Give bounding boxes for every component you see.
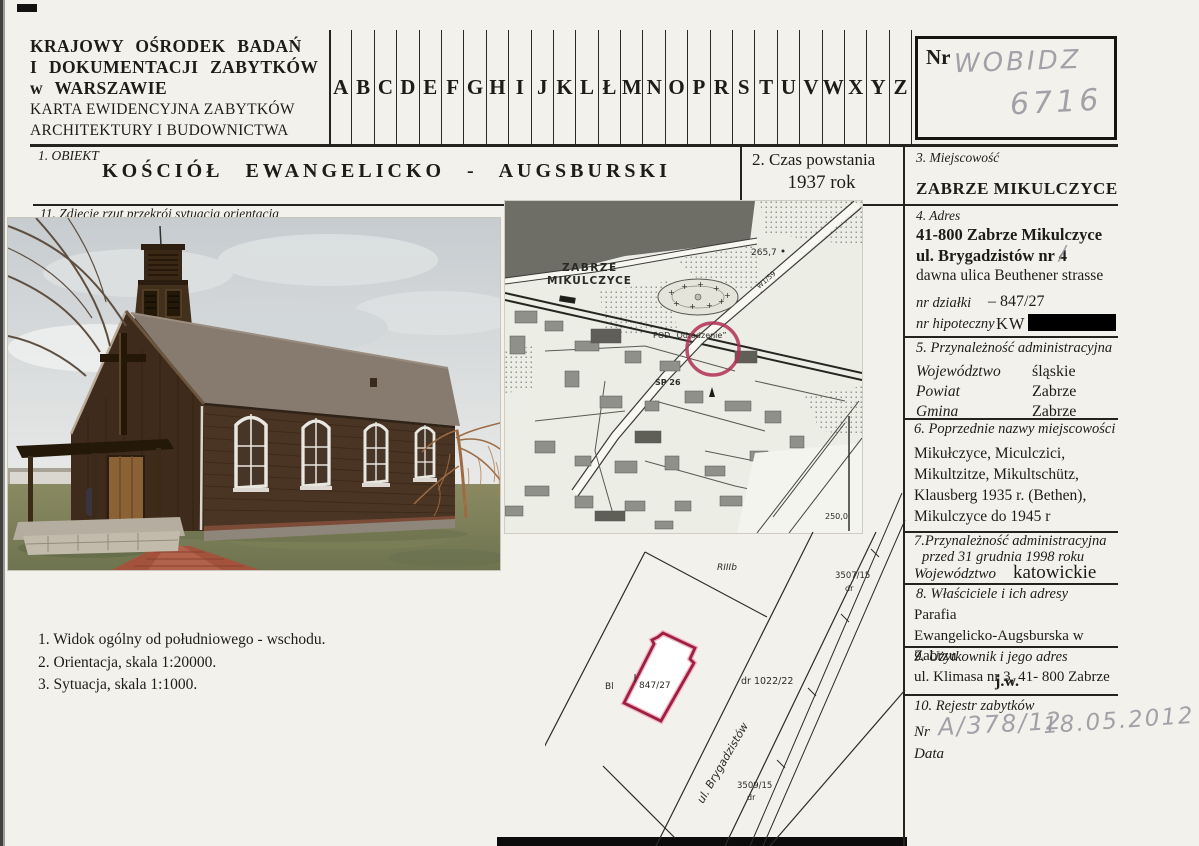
alphabet-letter: C [375,30,397,144]
s4-address-line1: 41-800 Zabrze Mikulczyce [916,225,1102,245]
org-line1: KRAJOWY OŚRODEK BADAŃ [30,36,332,57]
s4-address-line3: dawna ulica Beuthener strasse [916,267,1103,285]
s2-value: 1937 rok [740,172,903,194]
s7-label-line1: 7.Przynależność administracyjna [914,533,1107,550]
alphabet-letter: P [688,30,710,144]
svg-text:+: + [681,282,688,291]
site-plan: RIIIb Bl 847/27 dr 1022/22 3507/15 dr ul… [545,478,907,846]
label-road2-nr: 3507/15 [835,571,870,581]
s1-object-title: KOŚCIÓŁ EWANGELICKO - AUGSBURSKI [33,160,740,183]
s8-line: ul. Klimasa nr 3, 41- 800 Zabrze [914,667,1124,688]
alphabet-letter: G [464,30,486,144]
nr-handwritten-number: 6716 [1009,83,1103,123]
label-road1: dr 1022/22 [741,676,793,687]
label-bl: Bl [605,682,614,692]
s2-label: 2. Czas powstania [752,150,875,170]
road-3507 [750,493,905,846]
alphabet-index-strip: ABCDEFGHIJKLŁMNOPRSTUVWXYZ [330,30,912,144]
s7-value: katowickie [1013,562,1096,584]
s5-row-value: śląskie [1032,362,1076,382]
s6-label: 6. Poprzednie nazwy miejscowości [914,421,1115,438]
alphabet-letter: X [845,30,867,144]
s9-label: 9. Użytkownik i jego adres [914,649,1068,666]
alphabet-letter: Ł [599,30,621,144]
photo-captions: 1. Widok ogólny od południowego - wschod… [38,629,398,697]
alphabet-letter: A [330,30,352,144]
alphabet-letter: Z [890,30,912,144]
alphabet-letter: M [621,30,643,144]
label-road3-dr: dr [747,793,756,802]
svg-text:+: + [689,302,696,311]
svg-text:+: + [668,288,675,297]
alphabet-letter: N [643,30,665,144]
label-street: ul. Brygadzistów [694,720,751,805]
s10-date-handwritten: 18.05.2012 [1042,703,1195,740]
map-cemetery: +++ +++ +++ [658,279,738,315]
card-number-box: Nr WOBIDZ 6716 [915,36,1117,140]
svg-text:+: + [718,297,725,306]
alphabet-letter: V [800,30,822,144]
s8-lines: ParafiaEwangelicko-Augsburska w Zabrzuul… [914,605,1124,687]
scan-corner-mark [17,4,37,12]
s10-data-label: Data [914,746,944,763]
nr-label: Nr [926,45,951,70]
church-photo [8,218,500,570]
svg-text:+: + [706,301,713,310]
s4-hipoteczny-label: nr hipoteczny [916,316,995,333]
org-line3: w WARSZAWIE [30,78,332,99]
s5-row-value: Zabrze [1032,382,1076,402]
svg-text:+: + [697,280,704,289]
alphabet-letter: D [397,30,419,144]
alphabet-letter: I [509,30,531,144]
label-parcel: 847/27 [639,681,671,691]
s10-nr-label: Nr [914,724,930,741]
s5-label: 5. Przynależność administracyjna [916,340,1112,357]
rule-s9-s10 [903,694,1118,696]
alphabet-letter: L [576,30,598,144]
nr-handwritten-word: WOBIDZ [954,45,1082,79]
card-line1: KARTA EWIDENCYJNA ZABYTKÓW [30,99,332,120]
s5-row-value: Zabrze [1032,402,1076,422]
svg-text:+: + [673,299,680,308]
s6-lines: Mikułczyce, Miculczici,Mikultzitze, Miku… [914,443,1119,527]
map-town-line1: ZABRZE [562,262,618,274]
s6-line: Mikultzitze, Mikultschütz, [914,464,1119,485]
map-elevation1: 265,7 [751,248,777,258]
alphabet-letter: O [666,30,688,144]
alphabet-letter: S [733,30,755,144]
s3-value: ZABRZE MIKULCZYCE [916,179,1118,199]
s6-line: Mikulczyce do 1945 r [914,506,1119,527]
rule-s4-s5 [903,336,1118,338]
svg-text:+: + [713,284,720,293]
alphabet-letter: K [554,30,576,144]
s6-line: Mikułczyce, Miculczici, [914,443,1119,464]
label-road2-dr: dr [845,584,854,593]
s4-dzialki-value: – 847/27 [988,293,1044,311]
label-riiib: RIIIb [717,563,737,573]
s4-label: 4. Adres [916,208,960,224]
s4-address-line2: ul. Brygadzistów nr 4 [916,246,1067,266]
map-garden-label: POD „Odrodzenie” [653,331,726,340]
s4-hipoteczny-value: KW [996,314,1026,334]
label-road3-nr: 3509/15 [737,781,772,791]
redaction-bar [1028,314,1116,331]
s4-dzialki-label: nr działki [916,295,971,312]
s4-pencil-slash: / [1059,241,1066,265]
caption-line: 2. Orientacja, skala 1:20000. [38,652,398,675]
s5-row: GminaZabrze [916,402,1116,422]
s9-value: j.w. [995,673,1019,691]
s5-row: Województwośląskie [916,362,1116,382]
alphabet-letter: E [420,30,442,144]
org-line2: I DOKUMENTACJI ZABYTKÓW [30,57,332,78]
alphabet-letter: F [442,30,464,144]
org-header: KRAJOWY OŚRODEK BADAŃ I DOKUMENTACJI ZAB… [30,36,332,141]
alphabet-letter: R [711,30,733,144]
scan-left-edge [0,0,6,846]
alphabet-letter: W [823,30,845,144]
rule-header-bottom [30,144,1118,147]
s5-row-label: Województwo [916,362,1032,382]
scanned-heritage-card: { "header": { "org_line1": "KRAJOWY OŚRO… [0,0,1199,846]
s6-line: Klausberg 1935 r. (Bethen), [914,485,1119,506]
caption-line: 3. Sytuacja, skala 1:1000. [38,674,398,697]
s5-rows: WojewództwośląskiePowiatZabrzeGminaZabrz… [916,362,1116,422]
s8-line: Parafia [914,605,1124,626]
s5-row: PowiatZabrze [916,382,1116,402]
map-school-label: SP 26 [655,378,681,387]
s5-row-label: Powiat [916,382,1032,402]
alphabet-letter: J [532,30,554,144]
alphabet-letter: Y [867,30,889,144]
s3-label: 3. Miejscowość [916,150,999,166]
s8-label: 8. Właściciele i ich adresy [916,586,1068,603]
alphabet-letter: H [487,30,509,144]
caption-line: 1. Widok ogólny od południowego - wschod… [38,629,398,652]
s5-row-label: Gmina [916,402,1032,422]
card-line2: ARCHITEKTURY I BUDOWNICTWA [30,120,332,141]
map-town-line2: MIKULCZYCE [547,275,632,287]
s7-key: Województwo [914,566,996,583]
site-plan-labels: RIIIb Bl 847/27 dr 1022/22 3507/15 dr ul… [605,563,870,806]
alphabet-letter: U [778,30,800,144]
alphabet-letter: B [352,30,374,144]
svg-text:+: + [724,291,731,300]
alphabet-letter: T [755,30,777,144]
